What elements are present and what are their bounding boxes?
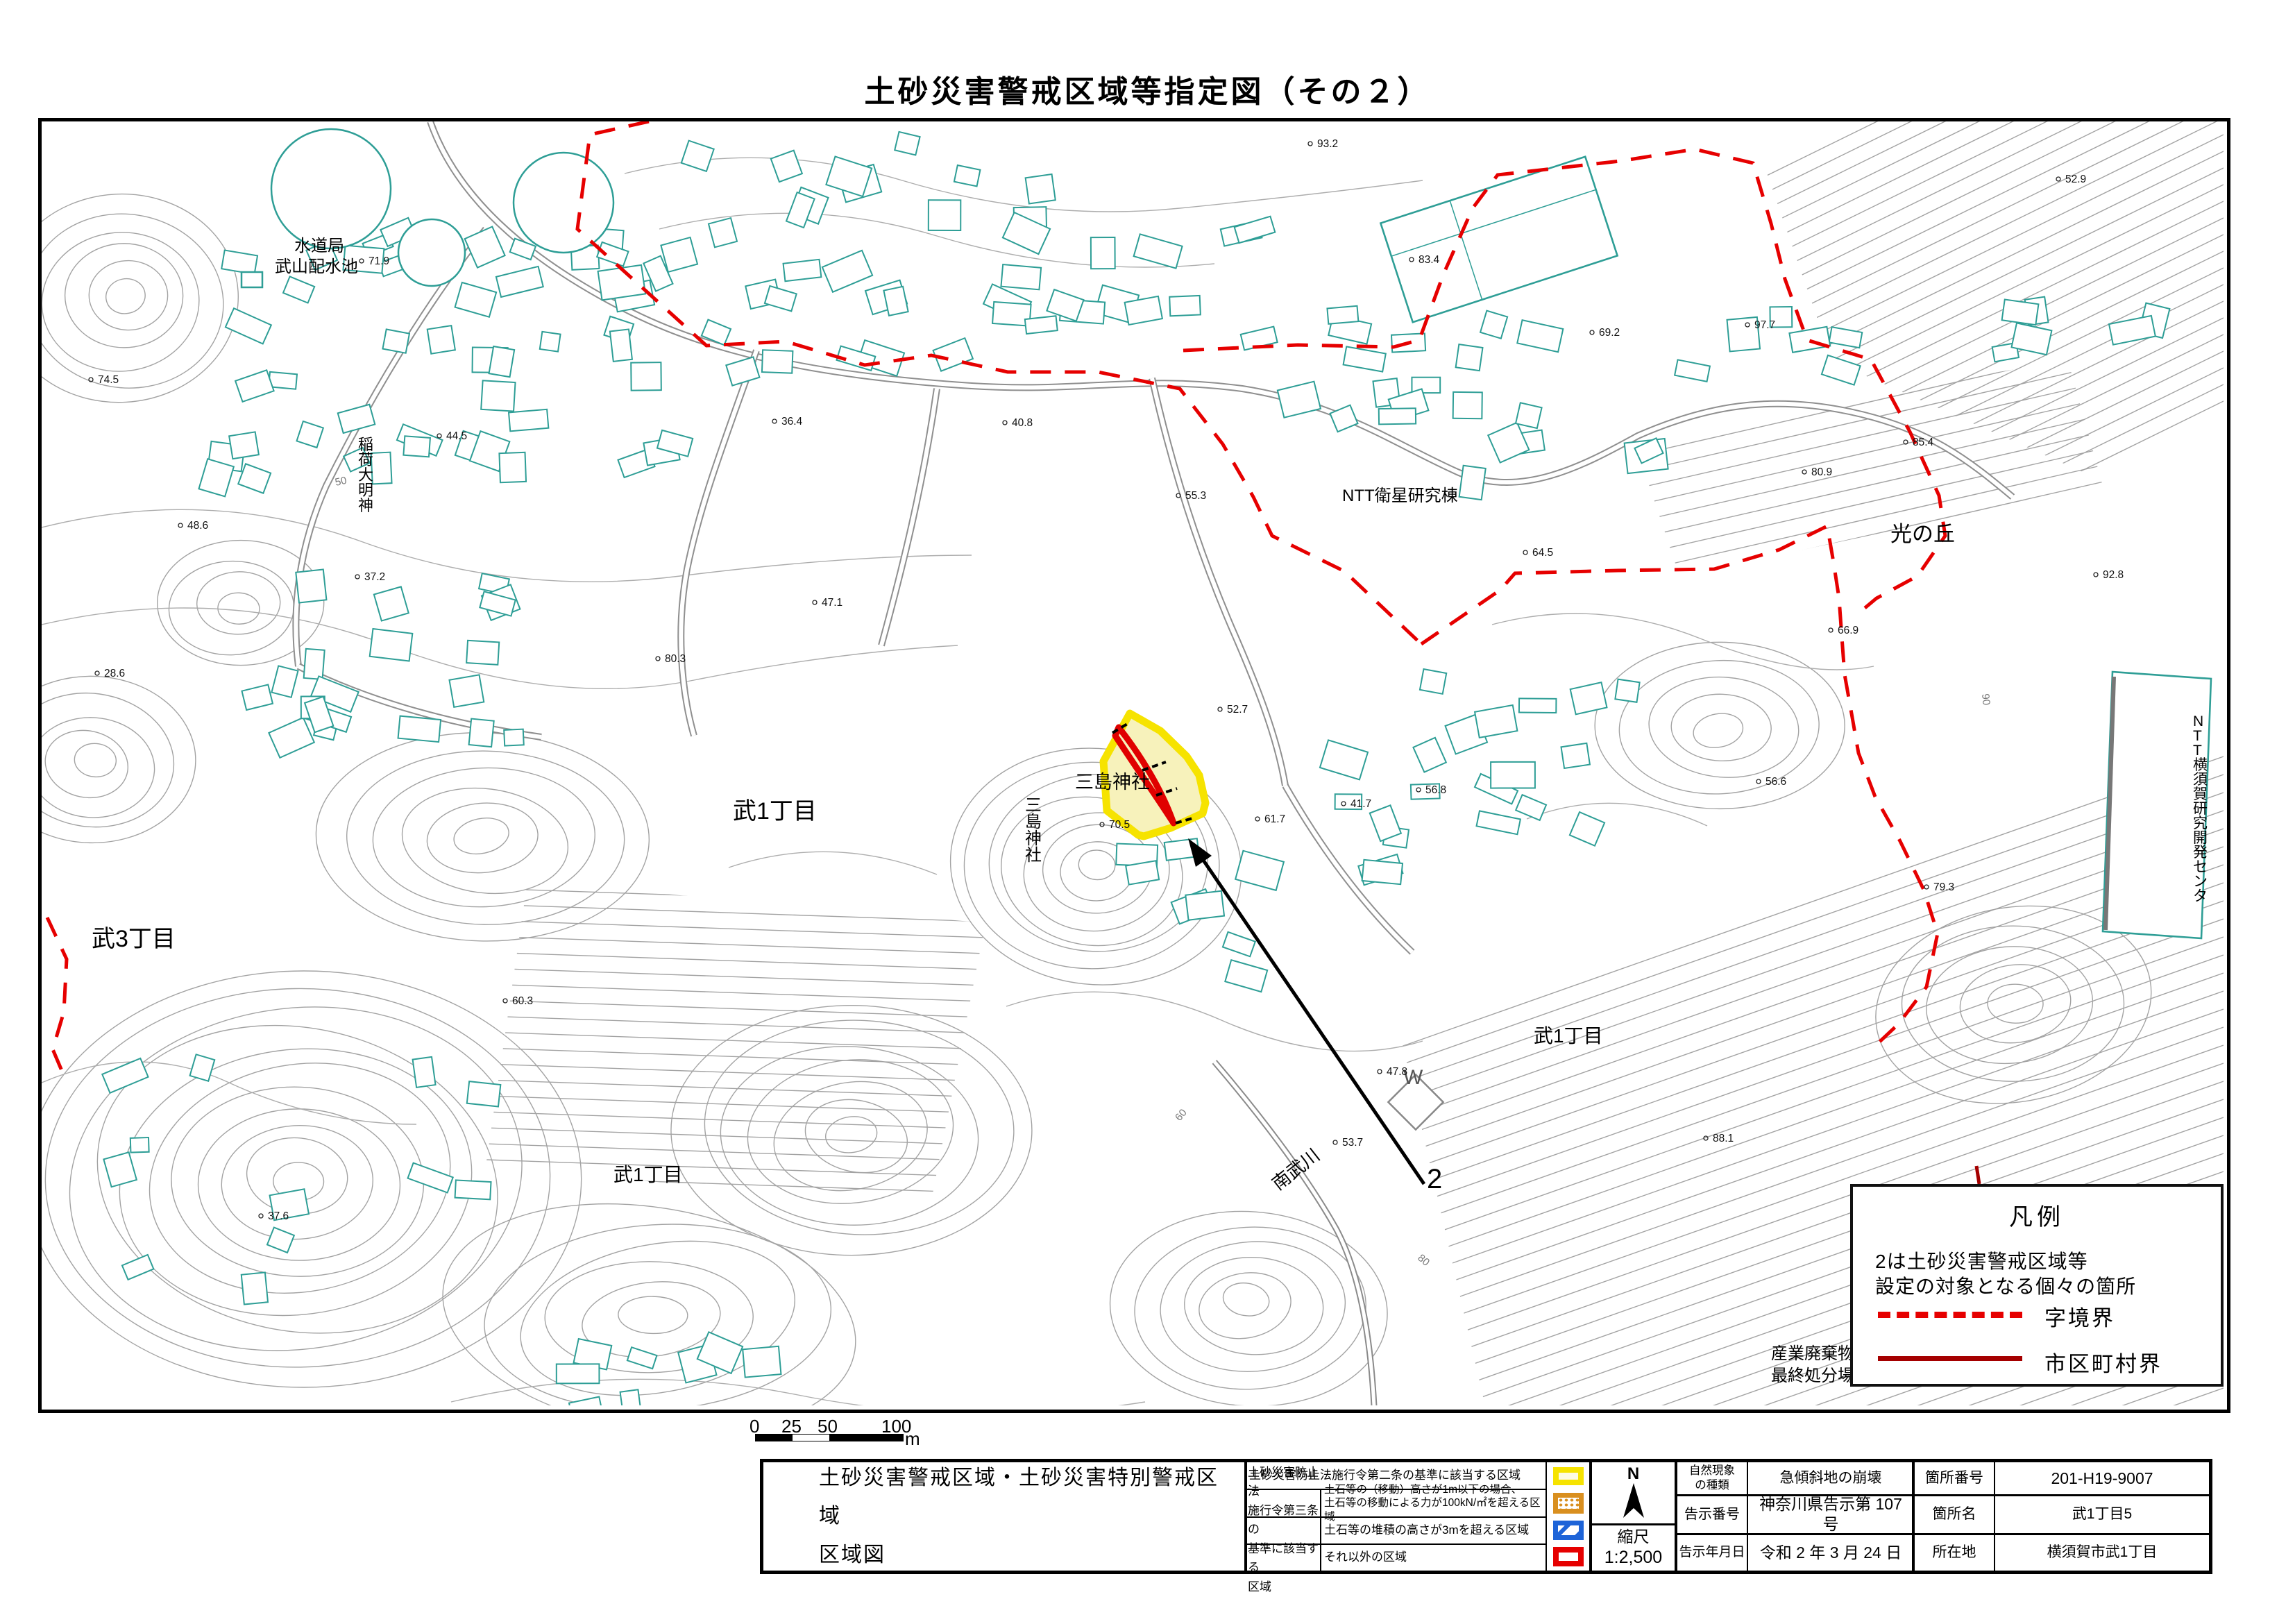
site-name-value: 武1丁目5 bbox=[1995, 1496, 2209, 1533]
spot-height-label: 64.5 bbox=[1532, 547, 1553, 559]
spot-height-dot bbox=[503, 999, 507, 1003]
water-tank bbox=[514, 153, 613, 253]
spot-height-label: 28.6 bbox=[104, 668, 125, 679]
spot-height-label: 66.9 bbox=[1838, 625, 1858, 636]
spot-height-label: 41.7 bbox=[1350, 798, 1371, 810]
contour-hill bbox=[671, 1006, 1032, 1255]
dashed-boundary-label: 字境界 bbox=[2044, 1301, 2115, 1332]
spot-height-label: 37.2 bbox=[364, 571, 385, 583]
title-block: 土砂災害警戒区域・土砂災害特別警戒区域 区域図 土砂災害防止法施行令第二条の基準… bbox=[760, 1459, 2212, 1574]
spot-height-label: 80.3 bbox=[665, 653, 686, 665]
spot-height-label: 56.8 bbox=[1425, 784, 1446, 796]
map-place-label: 産業廃棄物 bbox=[1771, 1344, 1854, 1363]
spot-height-label: 52.7 bbox=[1227, 704, 1248, 716]
spot-height-label: 47.8 bbox=[1387, 1066, 1407, 1078]
north-arrow-icon bbox=[1622, 1483, 1645, 1519]
swatch-special-red-outline bbox=[1553, 1547, 1584, 1566]
contour-hill bbox=[314, 729, 652, 945]
legend-sediment-label: 土石等の堆積の高さが3mを超える区域 bbox=[1324, 1518, 1545, 1543]
spot-height-dot bbox=[1308, 142, 1312, 146]
map-place-label: 光の丘 bbox=[1890, 522, 1955, 546]
spot-height-label: 44.5 bbox=[446, 430, 467, 442]
municipal-boundary bbox=[1976, 1166, 1979, 1184]
site-name-label: 箇所名 bbox=[1915, 1496, 1994, 1533]
scale-unit: m bbox=[905, 1428, 920, 1450]
spot-height-label: 74.5 bbox=[98, 374, 119, 386]
hazard-map-sheet: 土砂災害警戒区域等指定図（その２） 水道局武山配水池稲荷大明神武1丁目武3丁目三… bbox=[0, 0, 2295, 1624]
spot-height-label: 52.9 bbox=[2065, 174, 2086, 185]
map-place-label: 武山配水池 bbox=[275, 257, 358, 276]
contour-line bbox=[42, 1062, 416, 1124]
legend-debris-label: 土石等の（移動）高さが1m以下の場合、土石等の移動による力が100kN/㎡を超え… bbox=[1324, 1490, 1545, 1516]
contour-value-label: 90 bbox=[1979, 693, 1992, 706]
map-legend-box: 凡例 2は土砂災害警戒区域等 設定の対象となる個々の箇所 字境界 市区町村界 bbox=[1850, 1184, 2224, 1387]
notice-no-value: 神奈川県告示第 107 号 bbox=[1750, 1496, 1912, 1533]
water-tank bbox=[271, 129, 391, 248]
spot-height-dot bbox=[813, 600, 817, 604]
spot-height-label: 48.6 bbox=[187, 520, 208, 532]
contour-line bbox=[1492, 614, 1874, 670]
spot-height-dot bbox=[1378, 1069, 1382, 1074]
spot-height-dot bbox=[355, 575, 359, 579]
spot-height-dot bbox=[123, 78, 127, 82]
spot-height-dot bbox=[2056, 177, 2060, 181]
spot-height-dot bbox=[1333, 1140, 1337, 1144]
notice-no-label: 告示番号 bbox=[1677, 1496, 1747, 1533]
site-no-label: 箇所番号 bbox=[1915, 1462, 1994, 1494]
building-cluster bbox=[557, 1332, 781, 1423]
contour-hill bbox=[1103, 1202, 1394, 1416]
spot-height-label: 79.3 bbox=[1933, 881, 1954, 893]
notice-date-value: 令和 2 年 3 月 24 日 bbox=[1750, 1534, 1912, 1571]
spot-height-label: 47.1 bbox=[822, 597, 842, 609]
spot-height-dot bbox=[1590, 330, 1594, 335]
map-place-label: 三島神社 bbox=[1075, 772, 1150, 793]
building-cluster bbox=[102, 1054, 500, 1304]
spot-height-label: 37.6 bbox=[268, 1210, 289, 1222]
map-place-label: 南武川 bbox=[1268, 1144, 1323, 1194]
spot-height-dot bbox=[1523, 550, 1527, 555]
map-legend-note-2: 設定の対象となる個々の箇所 bbox=[1875, 1271, 2136, 1299]
map-legend-title: 凡例 bbox=[1853, 1198, 2221, 1232]
contour-line bbox=[729, 852, 937, 874]
building-cluster bbox=[661, 132, 1277, 386]
contour-value-label: 50 bbox=[334, 475, 348, 489]
building-cluster bbox=[1320, 669, 1640, 885]
site-no-value: 201-H19-9007 bbox=[1995, 1462, 2209, 1494]
spot-height-label: 93.2 bbox=[1317, 138, 1338, 150]
swatch-special-orange-dots bbox=[1553, 1493, 1584, 1514]
phenomenon-label: 自然現象の種類 bbox=[1677, 1462, 1747, 1494]
spot-height-label: 80.9 bbox=[1811, 466, 1832, 478]
spot-height-dot bbox=[1255, 817, 1260, 821]
zone-pointer-arrow bbox=[1195, 848, 1424, 1184]
spot-height-dot bbox=[1924, 885, 1929, 889]
spot-height-dot bbox=[1756, 779, 1761, 784]
spot-height-label: 60.3 bbox=[512, 995, 533, 1007]
spot-height-dot bbox=[437, 434, 441, 438]
spot-height-label: 70.5 bbox=[1109, 819, 1130, 831]
spot-height-label: 36.4 bbox=[781, 416, 803, 428]
spot-height-label: 88.1 bbox=[1713, 1133, 1734, 1144]
spot-height-dot bbox=[656, 657, 660, 661]
north-label: N bbox=[1592, 1464, 1675, 1485]
contour-hill bbox=[1595, 642, 1845, 809]
map-place-label: 稲荷大明神 bbox=[358, 436, 373, 514]
dashed-boundary-sample bbox=[1878, 1312, 2022, 1318]
map-place-label: 三島神社 bbox=[1025, 796, 1042, 865]
spot-height-label: 69.2 bbox=[1599, 327, 1620, 339]
spot-height-label: 55.3 bbox=[1185, 490, 1206, 502]
scale-cell: 縮尺 1:2,500 bbox=[1592, 1525, 1675, 1570]
spot-height-dot bbox=[1218, 707, 1222, 711]
spot-height-label: 97.7 bbox=[1754, 319, 1775, 331]
spot-height-label: 83.4 bbox=[1419, 254, 1440, 266]
map-place-label: 武1丁目 bbox=[733, 798, 817, 824]
map-place-label: 武1丁目 bbox=[613, 1164, 683, 1185]
legend-law3-label: 土砂災害防止法施行令第三条の基準に該当する区域 bbox=[1248, 1490, 1319, 1569]
map-legend-note-1: 2は土砂災害警戒区域等 bbox=[1875, 1246, 2088, 1274]
swatch-warning-yellow bbox=[1553, 1467, 1584, 1485]
contour-band bbox=[1624, 347, 2110, 625]
spot-height-dot bbox=[772, 419, 777, 423]
spot-height-dot bbox=[178, 523, 183, 527]
contour-line bbox=[1006, 992, 1423, 1051]
scale-bar: 0 25 50 100 m bbox=[750, 1416, 930, 1450]
contour-value-label: 80 bbox=[1415, 1252, 1432, 1269]
map-place-label: 最終処分場 bbox=[1771, 1367, 1854, 1385]
contour-line bbox=[42, 608, 958, 688]
contour-value-label: 60 bbox=[1173, 1107, 1189, 1124]
swatch-special-blue-hatch bbox=[1553, 1521, 1584, 1540]
map-place-label: 武3丁目 bbox=[92, 926, 176, 952]
legend-other-label: それ以外の区域 bbox=[1324, 1545, 1545, 1570]
solid-boundary-sample bbox=[1878, 1356, 2022, 1361]
spot-height-dot bbox=[95, 671, 99, 675]
location-label: 所在地 bbox=[1915, 1534, 1994, 1571]
notice-date-label: 告示年月日 bbox=[1677, 1534, 1747, 1571]
solid-boundary-label: 市区町村界 bbox=[2044, 1346, 2162, 1378]
map-place-label: 武1丁目 bbox=[1534, 1025, 1603, 1047]
reservoir-structure bbox=[242, 272, 262, 287]
spot-height-dot bbox=[259, 1214, 263, 1218]
spot-height-dot bbox=[2094, 573, 2098, 577]
contour-line bbox=[625, 158, 1423, 212]
contour-hill bbox=[0, 675, 197, 845]
aza-boundary-dashed bbox=[577, 121, 1421, 644]
water-tank bbox=[398, 219, 465, 286]
location-value: 横須賀市武1丁目 bbox=[1995, 1534, 2209, 1571]
spot-height-label: 71.9 bbox=[369, 255, 389, 267]
spot-height-dot bbox=[1829, 628, 1833, 632]
spot-height-label: 56.6 bbox=[1765, 776, 1786, 788]
spot-height-label: 53.7 bbox=[1342, 1137, 1363, 1149]
spot-height-label: 11.9 bbox=[132, 74, 152, 86]
aza-boundary-dashed bbox=[47, 917, 67, 1072]
building-cluster bbox=[242, 570, 523, 758]
contour-line bbox=[42, 509, 972, 582]
contour-hill bbox=[0, 187, 244, 409]
contour-line bbox=[1527, 803, 1707, 826]
river bbox=[1214, 1062, 1374, 1406]
phenomenon-value: 急傾斜地の崩壊 bbox=[1750, 1462, 1912, 1494]
spot-height-label: 40.8 bbox=[1012, 417, 1033, 429]
map-place-label: 2 bbox=[1427, 1164, 1442, 1194]
spot-height-label: 92.8 bbox=[2103, 569, 2124, 581]
map-place-label: 水道局 bbox=[294, 237, 344, 255]
spot-height-dot bbox=[1802, 470, 1806, 474]
contour-band bbox=[486, 888, 985, 1193]
sheet-title: 土砂災害警戒区域・土砂災害特別警戒区域 区域図 bbox=[819, 1462, 1235, 1571]
spot-height-label: 61.7 bbox=[1264, 813, 1285, 825]
scale-bar-graphic bbox=[755, 1434, 904, 1441]
spot-height-dot bbox=[1003, 421, 1007, 425]
map-place-label: NTT衛星研究棟 bbox=[1342, 487, 1458, 505]
spot-height-label: 85.4 bbox=[1913, 437, 1934, 448]
